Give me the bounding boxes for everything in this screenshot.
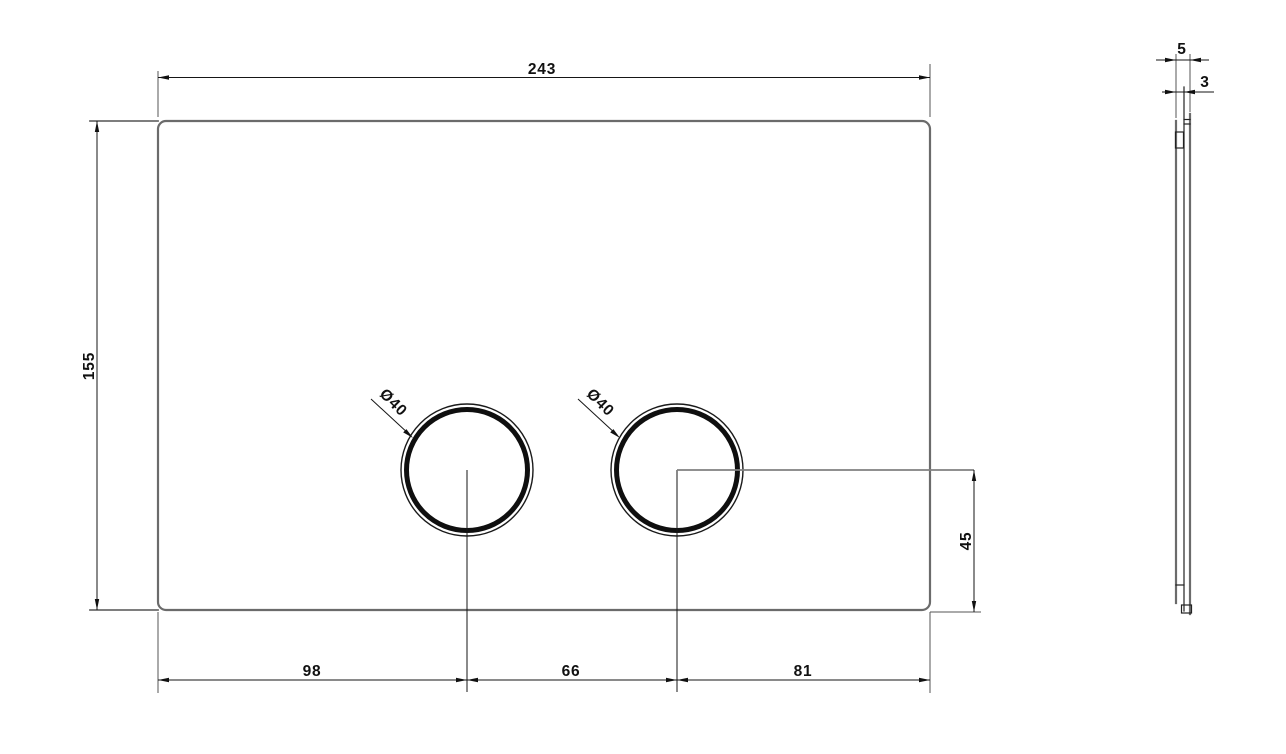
dim-label-button-spacing: 66 xyxy=(562,663,581,680)
dim-label-button-left-offset: 98 xyxy=(303,663,322,680)
dim-label-side-plate-thickness: 3 xyxy=(1200,74,1209,91)
dim-bottom-chain: 98 66 81 xyxy=(158,612,930,693)
side-view: 5 3 xyxy=(1156,41,1214,614)
flush-plate-outline xyxy=(158,121,930,610)
technical-drawing-canvas: 243 155 98 66 81 xyxy=(0,0,1286,754)
dim-label-plate-width: 243 xyxy=(528,61,556,78)
dim-label-button-center-height: 45 xyxy=(958,532,975,551)
dim-label-plate-height: 155 xyxy=(81,352,98,380)
front-view: 243 155 98 66 81 xyxy=(81,61,981,693)
dim-plate-height: 155 xyxy=(81,121,158,610)
dim-label-button-right-offset: 81 xyxy=(794,663,813,680)
dim-plate-width: 243 xyxy=(158,61,930,117)
dim-side-plate-thickness: 3 xyxy=(1162,74,1214,94)
drawing-sheet: 243 155 98 66 81 xyxy=(0,0,1286,754)
dim-label-side-total-depth: 5 xyxy=(1177,41,1186,58)
